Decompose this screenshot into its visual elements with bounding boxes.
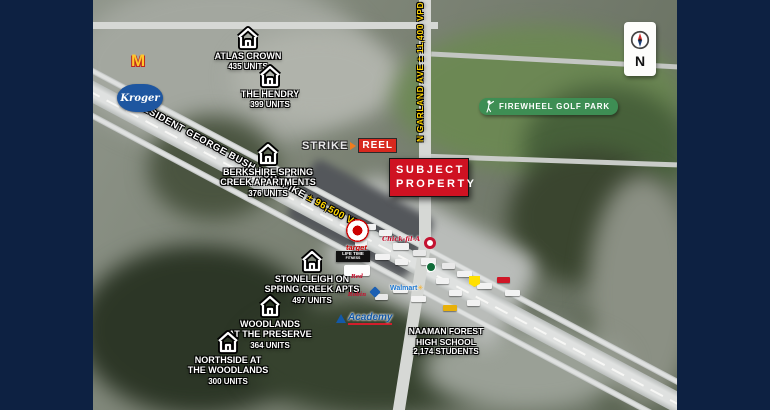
retail-logo-chip bbox=[443, 305, 457, 311]
apartment-label-northside: NORTHSIDE AT THE WOODLANDS 300 UNITS bbox=[158, 330, 298, 386]
green-circle-logo bbox=[426, 262, 436, 272]
red-circle-logo bbox=[424, 237, 436, 249]
apartment-units: 399 UNITS bbox=[200, 100, 340, 109]
academy-wordmark: Academy bbox=[348, 312, 392, 325]
garland-name: N GARLAND AVE bbox=[415, 64, 425, 142]
school-students: 2,174 STUDENTS bbox=[401, 347, 491, 357]
apartment-name: CREEK APARTMENTS bbox=[198, 177, 338, 187]
house-icon bbox=[257, 294, 283, 318]
apartment-name: NORTHSIDE AT bbox=[158, 355, 298, 365]
mcdonalds-icon: M bbox=[131, 51, 145, 71]
retail-logo-chip bbox=[436, 278, 449, 284]
apartment-name: THE WOODLANDS bbox=[158, 365, 298, 375]
retail-logo-chip bbox=[442, 263, 455, 269]
compass-rose: N bbox=[624, 22, 656, 76]
academy-a-icon bbox=[336, 314, 346, 323]
aerial-map: PRESIDENT GEORGE BUSH TURNPIKE ± 96,500 … bbox=[93, 0, 677, 410]
retail-logo-chip bbox=[505, 290, 520, 296]
garland-road-label: N GARLAND AVE ± 11,400 VPD bbox=[415, 2, 425, 142]
strike-wordmark: STRIKE bbox=[302, 140, 348, 152]
golfer-icon bbox=[484, 100, 495, 113]
north-label: N bbox=[635, 53, 645, 69]
firewheel-label: FIREWHEEL GOLF PARK bbox=[499, 102, 610, 111]
house-icon bbox=[215, 330, 241, 354]
firewheel-golf-park-badge: FIREWHEEL GOLF PARK bbox=[479, 98, 618, 115]
house-icon bbox=[299, 249, 325, 273]
academy-logo: Academy bbox=[336, 312, 392, 325]
school-name: HIGH SCHOOL bbox=[401, 337, 491, 348]
apartment-units: 300 UNITS bbox=[158, 377, 298, 386]
apartment-units: 376 UNITS bbox=[198, 189, 338, 198]
retail-logo-chip bbox=[393, 243, 409, 250]
lifetime-fitness-logo: LIFE TIME FITNESS bbox=[336, 251, 370, 262]
walmart-spark-icon: ✳ bbox=[417, 285, 423, 292]
walmart-wordmark: Walmart bbox=[390, 285, 417, 292]
reel-wordmark: REEL bbox=[358, 138, 397, 153]
marketing-map-page: PRESIDENT GEORGE BUSH TURNPIKE ± 96,500 … bbox=[0, 0, 770, 410]
subject-line1: SUBJECT bbox=[396, 163, 462, 177]
strike-arrow-icon bbox=[350, 142, 356, 150]
red-robin-logo: Red Robin bbox=[344, 265, 370, 276]
subject-property-badge: SUBJECT PROPERTY bbox=[389, 158, 469, 197]
apartment-label-the-hendry: THE HENDRY 399 UNITS bbox=[200, 64, 340, 110]
subject-line2: PROPERTY bbox=[396, 177, 462, 191]
apartment-name: WOODLANDS bbox=[200, 319, 340, 329]
target-bullseye-icon bbox=[346, 219, 369, 242]
chick-fil-a-wordmark: Chick-fil-A bbox=[382, 235, 420, 243]
house-icon bbox=[235, 26, 261, 50]
house-icon bbox=[255, 142, 281, 166]
walmart-logo: Walmart✳ bbox=[390, 277, 423, 295]
lifetime-line2: FITNESS bbox=[338, 257, 368, 261]
school-name: NAAMAN FOREST bbox=[401, 326, 491, 337]
kroger-logo: Kroger bbox=[117, 84, 163, 112]
compass-needle-icon bbox=[629, 29, 651, 51]
garland-vpd: ± 11,400 VPD bbox=[415, 2, 425, 65]
naaman-forest-label: NAAMAN FOREST HIGH SCHOOL 2,174 STUDENTS bbox=[401, 326, 491, 357]
retail-logo-chip bbox=[413, 250, 426, 256]
retail-logo-chip bbox=[449, 290, 462, 296]
apartment-name: THE HENDRY bbox=[200, 89, 340, 99]
retail-logo-chip bbox=[497, 277, 510, 283]
retail-logo-chip bbox=[467, 300, 480, 306]
apartment-name: ATLAS CROWN bbox=[178, 51, 318, 61]
retail-logo-chip bbox=[395, 259, 408, 265]
house-icon bbox=[257, 64, 283, 88]
retail-logo-chip bbox=[411, 296, 426, 302]
strike-reel-logo: STRIKE REEL bbox=[302, 138, 397, 153]
apartment-name: BERKSHIRE SPRING bbox=[198, 167, 338, 177]
